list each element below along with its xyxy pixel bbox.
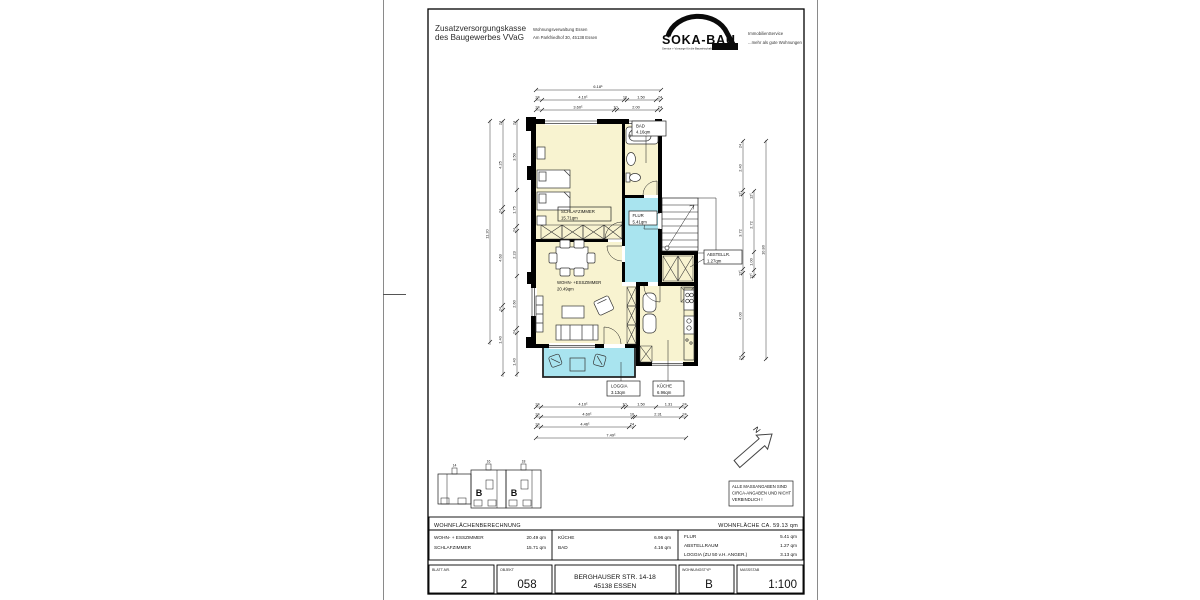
massstab-value: 1:100 <box>768 579 797 591</box>
wohnzimmer-area: 20.49qm <box>557 287 574 292</box>
dim-label: 2.40 <box>738 163 743 171</box>
blatt-value: 2 <box>461 579 467 591</box>
entrance-number: 18 <box>522 460 526 464</box>
blatt-label: BLATT-NR. <box>432 568 450 572</box>
dim-label: 7.49⁵ <box>606 433 616 438</box>
area-row-value: 5.41 qm <box>780 534 797 539</box>
org-name-line2: des Baugewerbes VVaG <box>435 33 524 42</box>
area-row-label: BAD <box>558 545 568 550</box>
dim-label: 24 <box>498 208 503 213</box>
area-row-label: ABSTELLRAUM <box>684 543 718 548</box>
area-table-title: WOHNFLÄCHENBERECHNUNG <box>434 522 521 529</box>
wohnzimmer-label: WOHN- +ESSZIMMER <box>557 280 601 285</box>
dim-label: 1.40 <box>512 357 517 365</box>
dept-line1: Wohnungsverwaltung Essen <box>533 27 588 32</box>
dim-label: 2.72 <box>749 221 754 229</box>
dim-label: 4.25 <box>498 161 503 169</box>
soka-bau-logo: SOKA-BAU Service + Vorsorge für die Bauw… <box>662 16 803 50</box>
dim-label: 24 <box>630 422 635 427</box>
dim-label: 2.60 <box>512 299 517 307</box>
dim-label: 2.31 <box>654 412 662 417</box>
kueche-label: KÜCHE <box>657 384 672 389</box>
area-row-value: 1.27 qm <box>780 543 797 548</box>
dim-label: 1.50 <box>637 402 645 407</box>
logo-right-line2: ...mehr als gute Wohnungen <box>748 40 803 45</box>
area-row-label: WOHN- + ESSZIMMER <box>434 535 484 540</box>
sheet-header: Zusatzversorgungskasse des Baugewerbes V… <box>435 16 803 50</box>
dim-label: 3.60⁵ <box>573 105 583 110</box>
dim-label: 24 <box>738 143 743 148</box>
dim-label: 6.18⁵ <box>593 84 603 89</box>
keyplan-marker-b2: B <box>511 488 518 498</box>
loggia-area: 3.13qm <box>611 390 626 395</box>
dim-label: 3.72 <box>738 229 743 237</box>
dim-label: 24 <box>535 95 540 100</box>
note-line2: CIRCA-ANGABEN UND NICHT <box>732 491 792 496</box>
massstab-label: MASSSTAB <box>740 568 760 572</box>
flur-label: FLUR <box>633 213 644 218</box>
page-edge-right <box>817 0 818 600</box>
dim-label: 4.10⁵ <box>578 402 588 407</box>
note-line1: ALLE MASSANGABEN SIND <box>732 484 787 489</box>
dim-label: 24 <box>738 355 743 360</box>
fold-mark <box>383 294 406 295</box>
dim-label: 1.40 <box>498 335 503 343</box>
abstellraum-label: ABSTELLR. <box>707 252 730 257</box>
drawing-sheet: Zusatzversorgungskasse des Baugewerbes V… <box>427 8 807 596</box>
dim-label: 4.60⁵ <box>582 412 592 417</box>
page-edge-left <box>383 0 384 600</box>
address-line2: 45138 ESSEN <box>594 583 637 590</box>
dim-label: 24 <box>535 105 540 110</box>
logo-right-line1: ImmobilienService <box>748 31 784 36</box>
dim-label: 10 <box>622 402 627 407</box>
dim-label: 12⁵ <box>749 193 754 199</box>
address-line1: BERGHAUSER STR. 14-18 <box>574 574 656 581</box>
area-table-total: WOHNFLÄCHE CA. 59.13 qm <box>718 522 798 529</box>
area-row-label: KÜCHE <box>558 534 574 540</box>
area-row-label: SCHLAFZIMMER <box>434 545 472 550</box>
dim-label: 1.50 <box>637 95 645 100</box>
kueche-area: 6.96qm <box>657 390 672 395</box>
dim-label: 12⁵ <box>738 270 743 276</box>
dim-label: 24 <box>535 422 540 427</box>
wohnungstyp-label: WOHNUNGSTYP <box>682 568 711 572</box>
logo-wordmark: SOKA-BAU <box>662 33 736 47</box>
title-block: BLATT-NR. 2 OBJEKT 058 BERGHAUSER STR. 1… <box>429 565 803 593</box>
dim-label: 3.50 <box>512 152 517 160</box>
north-arrow-icon <box>734 434 772 468</box>
dept-line2: Am Parkfriedhof 30, 45138 Essen <box>533 35 598 40</box>
dim-label: 2.23 <box>512 251 517 259</box>
room-wohnzimmer-ext <box>622 286 636 344</box>
org-name-line1: Zusatzversorgungskasse <box>435 24 526 33</box>
dim-label: 12⁵ <box>738 191 743 197</box>
dim-label: 24 <box>535 412 540 417</box>
north-arrow: N <box>734 425 772 468</box>
dim-label: 1.00 <box>749 257 754 265</box>
keyplan-marker-b1: B <box>476 488 483 498</box>
flur-area: 5.41qm <box>633 220 648 225</box>
dim-label: 4.10⁵ <box>578 95 588 100</box>
bad-label: BAD <box>636 124 645 129</box>
area-row-label: FLUR <box>684 534 697 539</box>
bad-area: 4.16qm <box>636 130 651 135</box>
dim-label: 24 <box>682 402 687 407</box>
floor-plan: BAD 4.16qm SCHLAFZIMMER 15.71qm FLUR 5.4… <box>485 84 769 440</box>
note-line3: VERBINDLICH ! <box>732 497 762 502</box>
abstellraum-area: 1.27qm <box>707 259 722 264</box>
area-row-value: 6.96 qm <box>654 535 671 540</box>
document-page: Zusatzversorgungskasse des Baugewerbes V… <box>0 0 1200 600</box>
dim-label: 10.80 <box>761 244 766 255</box>
schlafzimmer-area: 15.71qm <box>561 216 578 221</box>
staircase <box>662 198 716 253</box>
schlafzimmer-label: SCHLAFZIMMER <box>561 209 595 214</box>
disclaimer-note: ALLE MASSANGABEN SIND CIRCA-ANGABEN UND … <box>729 481 793 506</box>
dim-label: 24 <box>512 227 517 232</box>
north-label: N <box>751 425 761 436</box>
entrance-number: 16 <box>487 460 491 464</box>
area-table: WOHNFLÄCHENBERECHNUNG WOHNFLÄCHE CA. 59.… <box>429 517 803 560</box>
area-row-value: 4.16 qm <box>654 545 671 550</box>
loggia-label: LOGGIA <box>611 384 628 389</box>
objekt-label: OBJEKT <box>500 568 515 572</box>
area-row-value: 3.13 qm <box>780 552 797 557</box>
dim-label: 24 <box>498 120 503 125</box>
entrance-number: 14 <box>453 464 457 468</box>
dim-label: 24 <box>682 412 687 417</box>
area-row-value: 20.49 qm <box>526 535 546 540</box>
dim-label: 4.00 <box>738 311 743 319</box>
objekt-value: 058 <box>517 579 536 591</box>
dim-label: 12⁵ <box>749 273 754 279</box>
dim-label: 1.75 <box>512 206 517 214</box>
logo-tagline: Service + Vorsorge für die Bauwirtschaft <box>662 47 712 51</box>
room-flur <box>625 198 658 282</box>
area-row-label: LOGGIA (ZU 50 v.H. ANGER.) <box>684 552 748 557</box>
dim-label: 4.63 <box>498 254 503 262</box>
wohnungstyp-value: B <box>705 579 713 591</box>
area-row-value: 15.71 qm <box>526 545 546 550</box>
dim-label: 2.00 <box>632 105 640 110</box>
dim-label: 10 <box>623 95 628 100</box>
dim-label: 11.20 <box>485 228 490 238</box>
dim-label: 1.31 <box>665 402 673 407</box>
dim-label: 24 <box>512 120 517 125</box>
dim-label: 24 <box>498 306 503 311</box>
dim-label: 4.46⁵ <box>580 422 590 427</box>
dim-label: 10 <box>613 105 618 110</box>
dim-label: 24 <box>512 329 517 334</box>
dim-label: 24 <box>535 402 540 407</box>
key-plan: 14 16 18 B B <box>438 460 541 509</box>
